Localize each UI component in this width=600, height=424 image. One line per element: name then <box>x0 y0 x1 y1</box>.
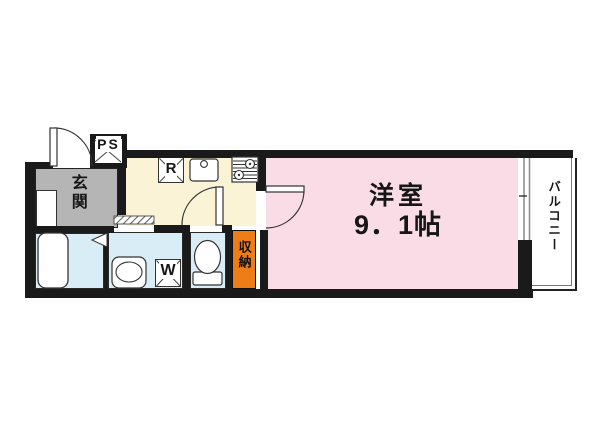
western-room-label: 洋室 9．1帖 <box>286 183 510 240</box>
entrance-door-arc <box>54 128 92 166</box>
western-room-name: 洋室 <box>286 183 510 209</box>
room-bathroom <box>35 233 104 289</box>
washer-label: W <box>155 263 181 280</box>
balcony-window <box>519 158 530 240</box>
wall-western-right <box>518 240 532 298</box>
wall-bottom <box>25 289 533 298</box>
refrigerator-label: R <box>158 161 184 177</box>
wall-genkan-kitchen <box>118 167 126 215</box>
entrance-door-leaf <box>50 128 57 166</box>
wall-mid-a <box>25 226 114 233</box>
shoe-cabinet <box>36 190 57 229</box>
wall-bath-wash <box>104 232 108 289</box>
ps-label: PS <box>90 137 127 152</box>
storage-label: 収納 <box>237 240 251 270</box>
floor-plan: 玄関 PS R W 収納 洋室 9．1帖 バルコニー <box>0 0 600 424</box>
wall-storage-right <box>260 230 268 289</box>
room-toilet <box>190 232 226 289</box>
balcony-label: バルコニー <box>546 180 559 253</box>
genkan-label: 玄関 <box>68 174 85 212</box>
wall-entrance-stub <box>30 162 53 169</box>
wall-top <box>118 150 573 158</box>
room-kitchen <box>126 158 256 226</box>
wall-wash-toilet <box>183 225 190 289</box>
wall-kitchen-western <box>256 158 266 191</box>
wall-toilet-storage <box>226 230 232 289</box>
western-room-size: 9．1帖 <box>286 211 510 239</box>
